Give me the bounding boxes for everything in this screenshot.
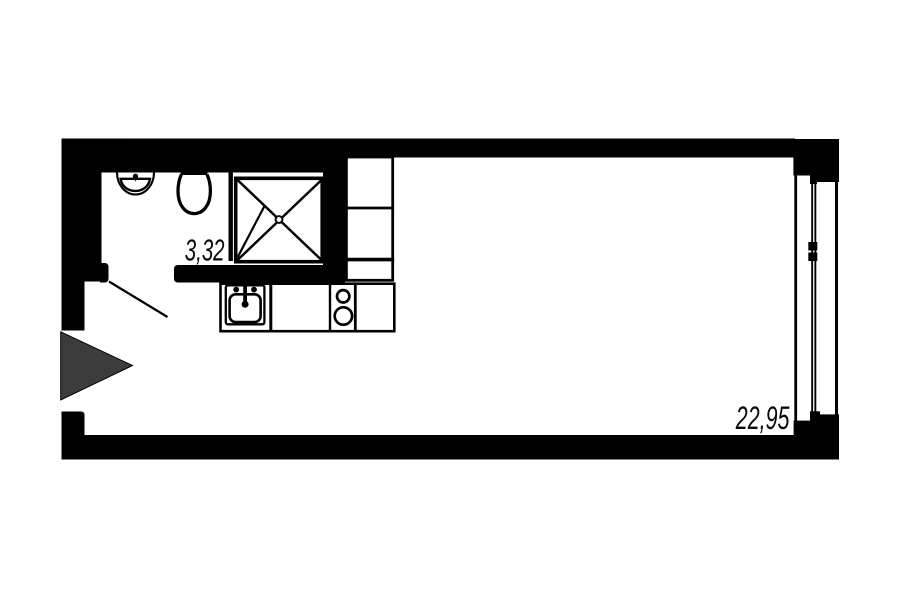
svg-text:22,95: 22,95 — [735, 400, 790, 436]
svg-text:3,32: 3,32 — [185, 234, 225, 267]
